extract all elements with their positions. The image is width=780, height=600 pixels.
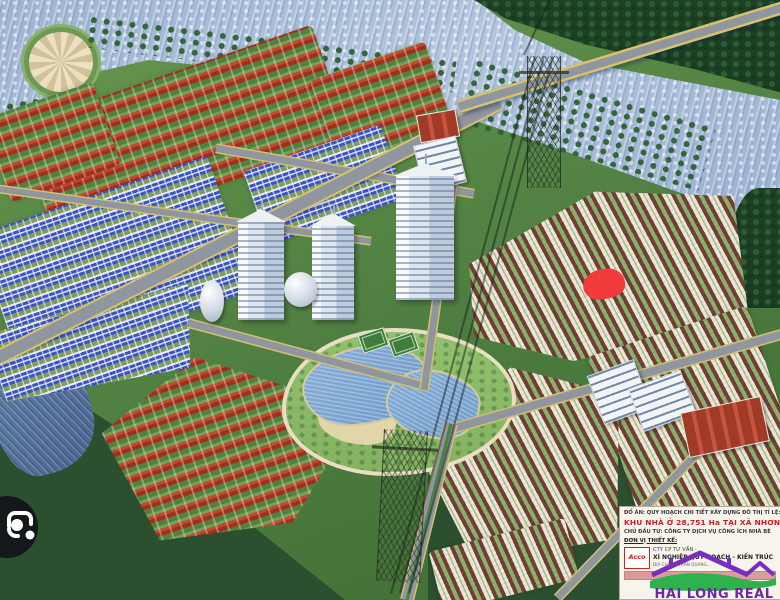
power-pylon-north	[527, 56, 561, 188]
camera-lens-icon	[4, 508, 38, 544]
office-tower-tall	[396, 176, 454, 300]
power-pylon-south	[376, 429, 428, 583]
office-tower-left	[238, 222, 284, 320]
project-name-line: KHU NHÀ Ở 28,751 Ha TẠI XÃ NHƠN ĐỨC	[624, 518, 780, 528]
investor-line: CHỦ ĐẦU TƯ: CÔNG TY DỊCH VỤ CÔNG ÍCH NHÀ…	[624, 529, 780, 536]
watermark-small-roof-icon	[746, 563, 774, 575]
watermark-house-roof-icon	[652, 553, 748, 575]
designer-label: ĐƠN VỊ THIẾT KẾ:	[624, 538, 780, 545]
round-podium	[284, 272, 317, 307]
water-tower	[200, 280, 224, 322]
watermark-text: HAI LONG REAL	[655, 587, 774, 600]
plan-title-line: ĐỒ ÁN: QUY HOẠCH CHI TIẾT XÂY DỰNG ĐÔ TH…	[624, 510, 780, 517]
hai-long-real-watermark: HAI LONG REAL	[646, 548, 780, 600]
site-plan: ĐỒ ÁN: QUY HOẠCH CHI TIẾT XÂY DỰNG ĐÔ TH…	[0, 0, 780, 600]
office-tower-mid	[312, 226, 354, 320]
